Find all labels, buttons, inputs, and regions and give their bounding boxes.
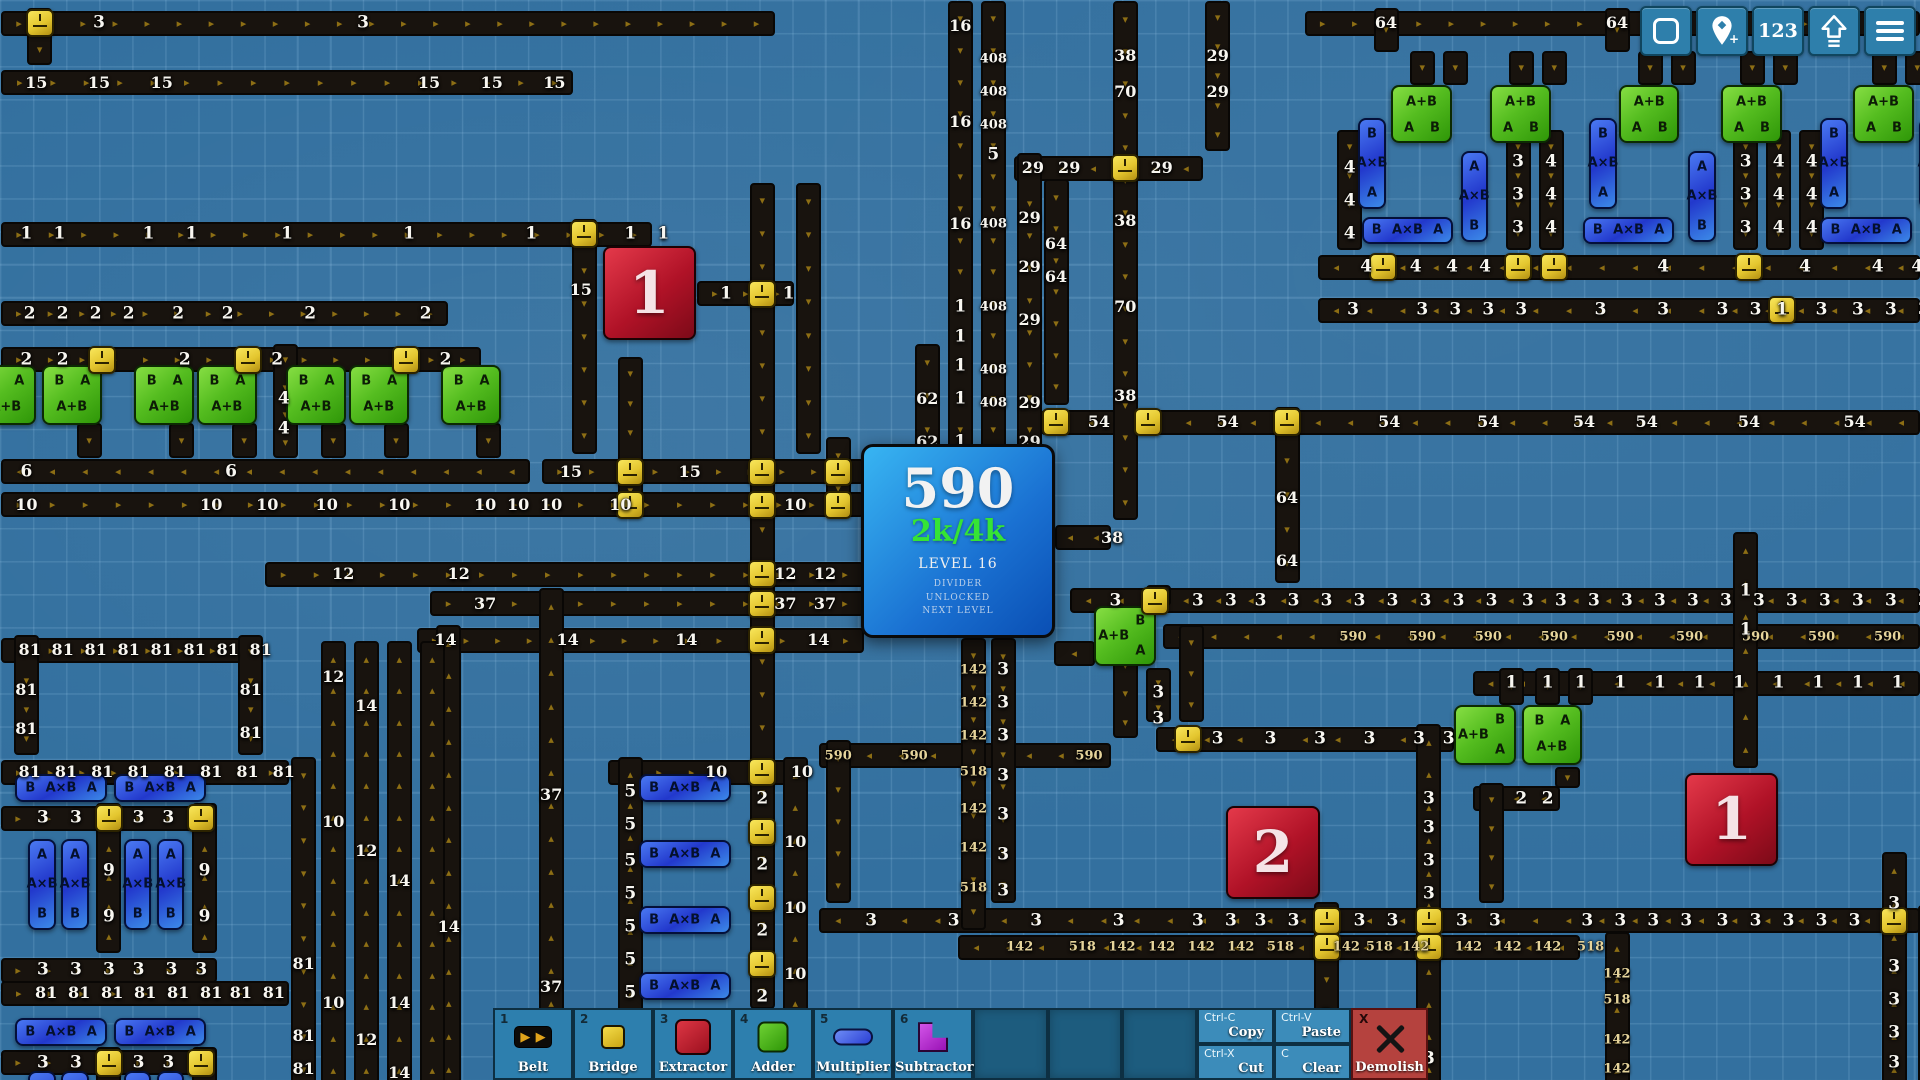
conveyor-belt[interactable]: ▾ — [169, 423, 194, 457]
conveyor-belt[interactable]: ▾ — [77, 423, 102, 457]
belt-number: 5 — [624, 886, 636, 903]
belt-arrow-icon: ▸ — [50, 77, 56, 88]
belt-number: 3 — [1512, 219, 1524, 236]
extractor-source[interactable]: 1 — [603, 246, 696, 339]
belt-arrow-icon: ▴ — [430, 654, 436, 665]
belt-arrow-icon: ◂ — [1632, 305, 1638, 316]
belt-number: 12 — [814, 566, 836, 582]
conveyor-belt[interactable]: ▾ — [1555, 767, 1580, 788]
belt-arrow-icon: ▸ — [284, 77, 290, 88]
belt-number: 3 — [1740, 219, 1752, 236]
clipboard-column: Ctrl-CCopyCtrl-XCut — [1197, 1008, 1274, 1080]
belt-number: 10 — [784, 834, 806, 850]
machine-label: A — [1632, 120, 1642, 135]
conveyor-belt[interactable]: ▾▾▾▾▾▾▾▾▾▾▾▾▾▾▾▾ — [1113, 1, 1138, 520]
adder-machine[interactable]: A+BBA — [1094, 606, 1156, 666]
belt-arrow-icon: ▸ — [1352, 18, 1358, 29]
multiplier-machine[interactable]: AA×BB — [1688, 151, 1715, 243]
belt-bridge[interactable] — [1111, 154, 1139, 182]
belt-number: 3 — [1387, 912, 1399, 929]
toolbar-empty-slot[interactable] — [1048, 1008, 1123, 1080]
machine-label: A — [80, 373, 90, 388]
machine-label: A — [1367, 186, 1377, 201]
multiplier-machine[interactable]: AA×BB — [124, 839, 151, 931]
belt-number: 3 — [997, 694, 1009, 711]
machine-label: A — [186, 1025, 196, 1040]
belt-arrow-icon: ▾ — [248, 704, 254, 715]
belt-arrow-icon: ▾ — [24, 704, 30, 715]
belt-number: 81 — [236, 764, 258, 780]
tool-extractor[interactable]: 3Extractor — [653, 1008, 733, 1080]
conveyor-belt[interactable]: ▾ — [232, 423, 257, 457]
level-hub[interactable]: 590 2k/4k LEVEL 16 DIVIDER UNLOCKED NEXT… — [861, 444, 1055, 638]
conveyor-belt[interactable]: ▾ — [476, 423, 501, 457]
belt-number: 81 — [68, 985, 90, 1001]
machine-label: B — [1367, 126, 1377, 141]
belt-arrow-icon: ▸ — [625, 18, 631, 29]
belt-arrow-icon: ◂ — [1632, 915, 1638, 926]
conveyor-belt[interactable]: ▸▸▸▸▸▸▸▸▸▸▸▸▸▸▸▸▸▸▸▸ — [1, 222, 652, 247]
conveyor-belt[interactable]: ▾▾▾▾▾ — [1205, 1, 1230, 151]
belt-arrow-icon: ◂ — [1250, 417, 1256, 428]
belt-arrow-icon: ▴ — [548, 601, 554, 612]
belt-number: 81 — [101, 985, 123, 1001]
adder-machine[interactable]: BAA+B — [286, 365, 346, 425]
belt-arrow-icon: ▾ — [393, 435, 399, 446]
machine-label: A×B — [1687, 189, 1718, 204]
clipboard-label: Cut — [1238, 1061, 1264, 1076]
belt-arrow-icon: ◂ — [1334, 305, 1340, 316]
machine-label: A — [1866, 120, 1876, 135]
machine-label: B — [1495, 713, 1505, 728]
belt-bridge[interactable] — [748, 280, 776, 308]
conveyor-belt[interactable]: ▾ — [1443, 51, 1468, 85]
clipboard-paste[interactable]: Ctrl-VPaste — [1274, 1008, 1351, 1044]
tool-subtractor[interactable]: 6Subtractor — [893, 1008, 973, 1080]
belt-number: 3 — [133, 1054, 145, 1071]
belt-number: 1 — [1733, 675, 1745, 692]
waypoint-button[interactable]: + — [1696, 6, 1748, 56]
belt-bridge[interactable] — [748, 560, 776, 588]
multiplier-machine[interactable]: AA×BB — [1461, 151, 1488, 243]
adder-machine[interactable]: BAA+B — [1522, 705, 1582, 765]
belt-bridge[interactable] — [748, 758, 776, 786]
adder-machine[interactable]: A+BBA — [1454, 705, 1516, 765]
belt-number: 3 — [1225, 592, 1237, 609]
belt-arrow-icon: ▴ — [430, 843, 436, 854]
belt-arrow-icon: ▸ — [243, 229, 249, 240]
belt-arrow-icon: ▸ — [611, 598, 617, 609]
multiplier-machine[interactable]: AA×BB — [28, 839, 55, 931]
belt-number: 3 — [1255, 592, 1267, 609]
belt-arrow-icon: ▾ — [628, 398, 634, 409]
menu-button[interactable] — [1864, 6, 1916, 56]
multiplier-machine[interactable]: BA×BA — [15, 1018, 107, 1045]
belt-number: 81 — [292, 956, 314, 972]
belt-number: 15 — [543, 75, 565, 91]
belt-arrow-icon: ▴ — [202, 931, 208, 942]
conveyor-belt[interactable]: ▸▸▸ — [697, 281, 794, 306]
conveyor-belt[interactable]: ▾ — [1410, 51, 1435, 85]
belt-arrow-icon: ▸ — [112, 18, 118, 29]
belt-arrow-icon: ◂ — [1632, 262, 1638, 273]
belt-bridge[interactable] — [392, 346, 420, 374]
belt-number: 1 — [1654, 675, 1666, 692]
conveyor-belt[interactable]: ▴▴▴▴▴▴▴▴▴▴▴▴▴▴ — [387, 641, 412, 1080]
conveyor-belt[interactable]: ▾ — [1542, 51, 1567, 85]
belt-bridge[interactable] — [824, 458, 852, 486]
belt-number: 5 — [624, 919, 636, 936]
clipboard-hotkey: Ctrl-C — [1204, 1011, 1235, 1024]
belt-arrow-icon: ▾ — [1215, 70, 1221, 81]
conveyor-belt[interactable]: ◂◂◂◂◂◂◂◂◂◂◂◂◂◂◂◂◂◂ — [1318, 298, 1920, 323]
adder-machine[interactable]: BAA+B — [134, 365, 194, 425]
belt-bridge[interactable] — [1504, 253, 1532, 281]
adder-machine[interactable]: A+BAB — [1391, 85, 1451, 144]
multiplier-machine[interactable]: AA×BB — [124, 1071, 151, 1080]
tool-belt[interactable]: 1▶▶Belt — [493, 1008, 573, 1080]
belt-number: 408 — [980, 86, 1007, 99]
belt-number: 9 — [103, 863, 115, 880]
belt-number: 3 — [1423, 820, 1435, 837]
belt-arrow-icon: ▾ — [1743, 170, 1749, 181]
multiplier-machine[interactable]: AA×BB — [61, 839, 88, 931]
belt-arrow-icon: ▾ — [760, 360, 766, 371]
numbers-label: 123 — [1758, 20, 1798, 42]
belt-number: 142 — [1402, 941, 1429, 954]
belt-arrow-icon: ▴ — [364, 780, 370, 791]
belt-number: 3 — [1453, 592, 1465, 609]
toolbar-empty-slot[interactable] — [1122, 1008, 1197, 1080]
multiplier-machine[interactable]: AA×BB — [28, 1071, 55, 1080]
machine-label: B — [147, 373, 157, 388]
tool-label: Subtractor — [895, 1060, 971, 1075]
belt-bridge[interactable] — [187, 804, 215, 832]
belt-arrow-icon: ▸ — [710, 499, 716, 510]
conveyor-belt[interactable]: ▾ — [321, 423, 346, 457]
multiplier-machine[interactable]: BA×BA — [639, 840, 731, 867]
belt-number: 14 — [675, 632, 697, 648]
belt-arrow-icon: ▸ — [251, 77, 257, 88]
belt-arrow-icon: ▾ — [1053, 350, 1059, 361]
belt-number: 3 — [1321, 592, 1333, 609]
belt-arrow-icon: ◂ — [1086, 595, 1092, 606]
conveyor-belt[interactable]: ▸▸▸▸▸▸▸▸▸▸▸▸▸▸▸▸▸▸▸▸▸▸▸▸▸▸ — [1, 492, 864, 517]
adder-machine[interactable]: A+BAB — [1490, 85, 1550, 144]
adder-machine[interactable]: BAA+B — [0, 365, 36, 425]
belt-arrow-icon: ▸ — [48, 354, 54, 365]
belt-number: 3 — [1255, 912, 1267, 929]
conveyor-belt[interactable]: ▾▾▾▾▾▾▾ — [572, 219, 597, 455]
belt-arrow-icon: ▴ — [364, 812, 370, 823]
belt-arrow-icon: ▸ — [308, 229, 314, 240]
belt-arrow-icon: ◂ — [1136, 942, 1142, 953]
belt-arrow-icon: ▸ — [143, 354, 149, 365]
multiplier-machine[interactable]: BA×BA — [114, 1018, 206, 1045]
belt-number: 518 — [960, 766, 987, 779]
belt-bridge[interactable] — [748, 818, 776, 846]
tool-adder[interactable]: 4Adder — [733, 1008, 813, 1080]
multiplier-icon — [833, 1029, 873, 1046]
belt-number: 590 — [1607, 630, 1634, 643]
extractor-source[interactable]: 2 — [1226, 806, 1319, 899]
belt-arrow-icon: ▾ — [1548, 141, 1554, 152]
belt-number: 37 — [774, 596, 796, 612]
conveyor-belt[interactable]: ◂◂◂◂◂◂◂◂◂◂◂◂◂◂◂◂ — [1, 459, 530, 484]
belt-arrow-icon: ▸ — [512, 598, 518, 609]
machine-label: A×B — [669, 978, 700, 993]
belt-number: 4 — [1799, 259, 1811, 276]
belt-bridge[interactable] — [88, 346, 116, 374]
conveyor-belt[interactable]: ▾▾▾▾ — [1479, 783, 1504, 903]
tool-hotkey: 6 — [900, 1012, 908, 1026]
belt-arrow-icon: ▸ — [463, 635, 469, 646]
belt-number: 70 — [1114, 84, 1136, 100]
belt-number: 1 — [720, 285, 732, 302]
belt-bridge[interactable] — [748, 626, 776, 654]
belt-bridge[interactable] — [95, 1049, 123, 1077]
machine-label: A+B — [1098, 629, 1129, 644]
multiplier-machine[interactable]: BA×BA — [1362, 217, 1454, 244]
belt-arrow-icon: ◂ — [1068, 532, 1074, 543]
belt-arrow-icon: ◂ — [1899, 417, 1905, 428]
multiplier-machine[interactable]: BA×BA — [1358, 118, 1385, 210]
belt-arrow-icon: ▾ — [1189, 637, 1195, 648]
multiplier-machine[interactable]: BA×BA — [1589, 118, 1616, 210]
belt-arrow-icon: ◂ — [835, 915, 841, 926]
multiplier-machine[interactable]: BA×BA — [639, 906, 731, 933]
belt-arrow-icon: ◂ — [1833, 595, 1839, 606]
belt-arrow-icon: ▾ — [581, 298, 587, 309]
conveyor-belt[interactable]: ▾ — [384, 423, 409, 457]
tool-bridge[interactable]: 2Bridge — [573, 1008, 653, 1080]
belt-number: 81 — [184, 642, 206, 658]
adder-machine[interactable]: A+BAB — [1853, 85, 1913, 144]
multiplier-machine[interactable]: AA×BB — [61, 1071, 88, 1080]
belt-number: 3 — [1595, 302, 1607, 319]
belt-arrow-icon: ▾ — [991, 424, 997, 435]
belt-arrow-icon: ◂ — [1832, 305, 1838, 316]
conveyor-belt[interactable]: ▾▾▾▾▾▾▾▾ — [796, 183, 821, 455]
belt-arrow-icon: ▸ — [396, 308, 402, 319]
belt-arrow-icon: ▸ — [184, 77, 190, 88]
numbers-overlay-button[interactable]: 123 — [1752, 6, 1804, 56]
belt-bridge[interactable] — [1134, 408, 1162, 436]
machine-label: A — [70, 847, 80, 862]
demolish-button[interactable]: XDemolish — [1351, 1008, 1428, 1080]
select-region-button[interactable] — [1640, 6, 1692, 56]
clipboard-cut[interactable]: Ctrl-XCut — [1197, 1044, 1274, 1080]
bridge-icon — [601, 1025, 625, 1049]
belt-number: 38 — [1114, 48, 1136, 64]
belt-arrow-icon: ▸ — [372, 229, 378, 240]
machine-label: A — [1734, 120, 1744, 135]
multiplier-machine[interactable]: BA×BA — [1820, 217, 1912, 244]
belt-arrow-icon: ▴ — [548, 932, 554, 943]
belt-arrow-icon: ◂ — [1832, 262, 1838, 273]
belt-number: 4 — [278, 391, 290, 408]
belt-bridge[interactable] — [1313, 907, 1341, 935]
machine-label: B — [1697, 219, 1707, 234]
belt-number: 2 — [57, 305, 69, 322]
belt-number: 15 — [25, 75, 47, 91]
belt-number: 3 — [1786, 592, 1798, 609]
belt-bridge[interactable] — [570, 220, 598, 248]
conveyor-belt[interactable]: ▴▴▴▴▴▴▴▴▴▴▴▴▴▴ — [420, 641, 445, 1080]
belt-number: 81 — [217, 642, 239, 658]
belt-bridge[interactable] — [824, 491, 852, 519]
belt-arrow-icon: ▸ — [16, 988, 22, 999]
belt-number: 4 — [1545, 219, 1557, 236]
multiplier-machine[interactable]: AA×BB — [157, 839, 184, 931]
belt-arrow-icon: ◂ — [1216, 595, 1222, 606]
belt-number: 1 — [143, 226, 155, 243]
belt-number: 2 — [440, 351, 452, 368]
belt-bridge[interactable] — [1415, 907, 1443, 935]
belt-number: 142 — [960, 663, 987, 676]
machine-label: A — [87, 780, 97, 795]
belt-bridge[interactable] — [616, 458, 644, 486]
machine-label: A×B — [122, 877, 153, 892]
belt-arrow-icon: ▸ — [209, 18, 215, 29]
belt-number: 81 — [273, 764, 295, 780]
belt-arrow-icon: ▾ — [806, 229, 812, 240]
belt-arrow-icon: ◂ — [214, 466, 220, 477]
belt-arrow-icon: ▴ — [430, 938, 436, 949]
belt-arrow-icon: ▸ — [116, 499, 122, 510]
belt-number: 4 — [1806, 186, 1818, 203]
conveyor-belt[interactable]: ▸▸▸▸▸▸▸▸▸▸ — [542, 459, 863, 484]
belt-arrow-icon: ▸ — [81, 229, 87, 240]
adder-machine[interactable]: A+BAB — [1721, 85, 1781, 144]
machine-label: A×B — [27, 877, 58, 892]
adder-machine[interactable]: A+BAB — [1619, 85, 1679, 144]
clipboard-copy[interactable]: Ctrl-CCopy — [1197, 1008, 1274, 1044]
extractor-source[interactable]: 1 — [1685, 773, 1778, 866]
belt-number: 590 — [1808, 630, 1835, 643]
belt-number: 4 — [1360, 259, 1372, 276]
belt-number: 1 — [657, 226, 669, 243]
adder-machine[interactable]: BAA+B — [441, 365, 501, 425]
upgrade-button[interactable] — [1808, 6, 1860, 56]
conveyor-belt[interactable]: ◂◂◂◂◂◂◂◂◂◂◂◂◂◂◂◂◂◂ — [1318, 255, 1920, 280]
conveyor-belt[interactable]: ▴▴▴▴▴▴▴ — [1733, 532, 1758, 768]
belt-number: 4 — [1872, 259, 1884, 276]
belt-number: 3 — [997, 727, 1009, 744]
conveyor-belt[interactable]: ◂ — [1054, 641, 1095, 666]
tool-multiplier[interactable]: 5Multiplier — [813, 1008, 893, 1080]
conveyor-belt[interactable]: ▸▸▸▸▸▸▸▸▸▸▸▸▸▸▸▸▸▸▸▸▸▸▸▸ — [1, 11, 775, 36]
belt-bridge[interactable] — [748, 491, 776, 519]
belt-arrow-icon: ▴ — [446, 802, 452, 813]
multiplier-machine[interactable]: BA×BA — [639, 972, 731, 999]
conveyor-belt[interactable]: ▴▴▴▴▴▴▴▴▴▴▴▴▴▴ — [321, 641, 346, 1080]
belt-bridge[interactable] — [1141, 587, 1169, 615]
toolbar-empty-slot[interactable] — [973, 1008, 1048, 1080]
belt-arrow-icon: ▾ — [1123, 239, 1129, 250]
belt-number: 3 — [195, 962, 207, 979]
belt-arrow-icon: ◂ — [1466, 305, 1472, 316]
belt-arrow-icon: ▸ — [593, 18, 599, 29]
belt-arrow-icon: ▾ — [581, 397, 587, 408]
conveyor-belt[interactable]: ▸▸▸▸▸▸▸▸▸▸▸▸▸▸ — [417, 628, 864, 653]
demolish-label: Demolish — [1353, 1060, 1426, 1075]
adder-machine[interactable]: BAA+B — [349, 365, 409, 425]
belt-bridge[interactable] — [234, 346, 262, 374]
belt-bridge[interactable] — [1369, 253, 1397, 281]
conveyor-belt[interactable]: ▾▾▾ — [1179, 625, 1204, 722]
tool-label: Multiplier — [815, 1060, 891, 1075]
belt-arrow-icon: ◂ — [1704, 417, 1710, 428]
belt-arrow-icon: ◂ — [1865, 915, 1871, 926]
belt-arrow-icon: ▸ — [652, 466, 658, 477]
belt-number: 3 — [1750, 302, 1762, 319]
belt-arrow-icon: ◂ — [82, 466, 88, 477]
belt-bridge[interactable] — [26, 9, 54, 37]
machine-label: A+B — [149, 400, 180, 415]
belt-number: 10 — [784, 900, 806, 916]
belt-arrow-icon: ▴ — [430, 748, 436, 759]
belt-number: 3 — [1614, 912, 1626, 929]
belt-bridge[interactable] — [187, 1049, 215, 1077]
conveyor-belt[interactable]: ▾▾▾▾▾ — [826, 740, 851, 903]
multiplier-machine[interactable]: BA×BA — [1820, 118, 1847, 210]
belt-bridge[interactable] — [1174, 725, 1202, 753]
clipboard-hotkey: Ctrl-V — [1281, 1011, 1311, 1024]
belt-bridge[interactable] — [748, 884, 776, 912]
belt-arrow-icon: ▾ — [1809, 170, 1815, 181]
conveyor-belt[interactable]: ▾ — [1509, 51, 1534, 85]
belt-bridge[interactable] — [1540, 253, 1568, 281]
belt-number: 3 — [70, 962, 82, 979]
belt-bridge[interactable] — [748, 950, 776, 978]
belt-bridge[interactable] — [1042, 408, 1070, 436]
conveyor-belt[interactable]: ▴▴▴▴▴▴▴▴▴▴▴▴▴ — [539, 588, 564, 1022]
belt-number: 2 — [1515, 790, 1527, 807]
belt-number: 2 — [1542, 790, 1554, 807]
belt-arrow-icon: ▸ — [497, 18, 503, 29]
belt-arrow-icon: ▾ — [1053, 381, 1059, 392]
belt-arrow-icon: ▾ — [1489, 794, 1495, 805]
belt-bridge[interactable] — [1273, 408, 1301, 436]
belt-number: 142 — [1188, 941, 1215, 954]
multiplier-machine[interactable]: AA×BB — [157, 1071, 184, 1080]
adder-machine[interactable]: BAA+B — [42, 365, 102, 425]
adder-machine[interactable]: BAA+B — [197, 365, 257, 425]
belt-arrow-icon: ◂ — [1699, 305, 1705, 316]
belt-arrow-icon: ▸ — [318, 77, 324, 88]
belt-bridge[interactable] — [1735, 253, 1763, 281]
belt-arrow-icon: ▾ — [806, 430, 812, 441]
belt-bridge[interactable] — [748, 590, 776, 618]
belt-arrow-icon: ▸ — [811, 466, 817, 477]
tool-hotkey: 1 — [500, 1012, 508, 1026]
belt-number: 590 — [1409, 630, 1436, 643]
belt-arrow-icon: ▸ — [842, 569, 848, 580]
conveyor-belt[interactable]: ▾▾▾▾▾▾▾ — [1044, 179, 1069, 405]
belt-number: 4 — [1344, 226, 1356, 243]
belt-arrow-icon: ▸ — [269, 308, 275, 319]
belt-bridge[interactable] — [748, 458, 776, 486]
multiplier-machine[interactable]: BA×BA — [1583, 217, 1675, 244]
machine-label: B — [361, 373, 371, 388]
belt-arrow-icon: ◂ — [1533, 262, 1539, 273]
belt-arrow-icon: ▾ — [1284, 524, 1290, 535]
clipboard-clear[interactable]: CClear — [1274, 1044, 1351, 1080]
belt-bridge[interactable] — [95, 804, 123, 832]
belt-arrow-icon: ▸ — [217, 77, 223, 88]
belt-arrow-icon: ◂ — [1606, 595, 1612, 606]
